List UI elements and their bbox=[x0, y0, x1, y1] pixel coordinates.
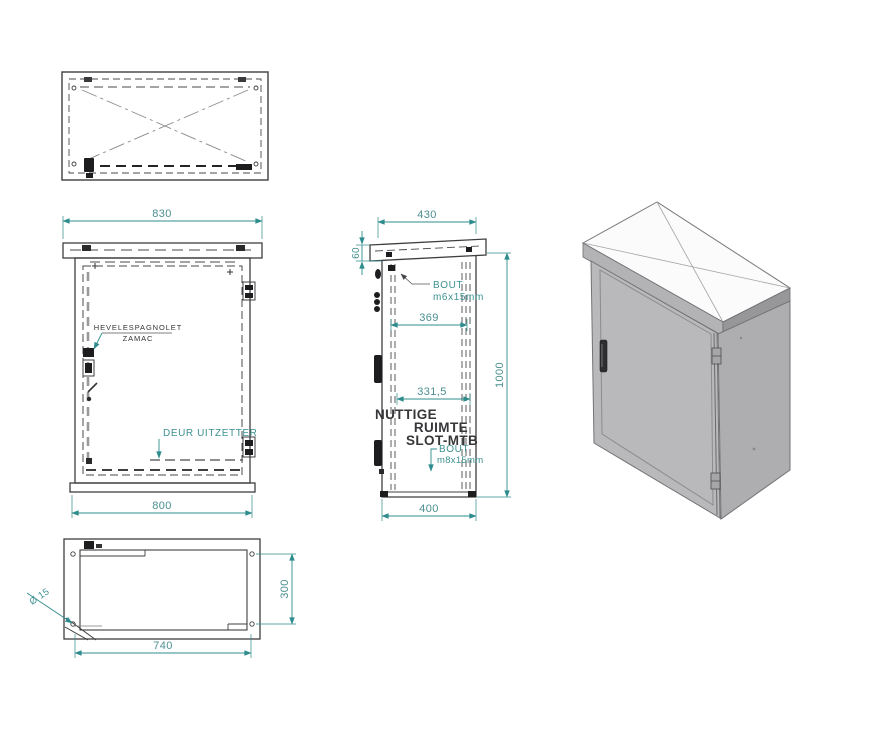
corner-hole bbox=[72, 86, 76, 90]
bolt-bottom-label-line2: m8x15mm bbox=[437, 455, 483, 466]
cabinet-drawing: 830 bbox=[0, 0, 869, 731]
dim-331-5: 331,5 bbox=[417, 386, 447, 398]
side-face bbox=[718, 301, 790, 519]
top-view bbox=[62, 72, 268, 180]
dim-300: 300 bbox=[279, 579, 291, 599]
dim-800: 800 bbox=[152, 500, 172, 512]
side-hardware bbox=[374, 265, 395, 474]
bolt-top-label-line2: m6x15mm bbox=[433, 292, 484, 303]
latch-label-line1: HEVELESPAGNOLET bbox=[94, 323, 182, 332]
dim-369: 369 bbox=[419, 312, 439, 324]
corner-hole bbox=[72, 162, 76, 166]
cross-mark bbox=[227, 269, 233, 275]
corner-hole bbox=[254, 86, 258, 90]
technical-drawing-canvas: 830 bbox=[0, 0, 869, 731]
iso-hinge-top bbox=[712, 348, 721, 364]
latch-hardware bbox=[96, 544, 102, 548]
latch-hardware bbox=[86, 173, 93, 178]
base-bracket bbox=[380, 491, 388, 497]
bolt bbox=[84, 77, 92, 82]
isometric-view bbox=[583, 202, 790, 519]
door-handle bbox=[600, 340, 607, 372]
bolt bbox=[236, 245, 245, 251]
corner-gusset bbox=[65, 627, 88, 640]
mounting-hole bbox=[250, 622, 254, 626]
roof-bolt bbox=[466, 247, 472, 252]
bottom-view: Ø 15 740 300 bbox=[27, 539, 296, 658]
dim-1000: 1000 bbox=[494, 362, 506, 388]
door-outline bbox=[83, 266, 242, 475]
dim-430: 430 bbox=[417, 209, 437, 221]
roof-bolt bbox=[386, 252, 392, 257]
side-view: 430 60 bbox=[351, 209, 511, 521]
latch-hardware bbox=[84, 158, 94, 172]
mounting-hole bbox=[71, 552, 75, 556]
door-stay-label: DEUR UITZETTER bbox=[163, 428, 258, 439]
iso-hinge-bottom bbox=[711, 473, 720, 489]
dim-740: 740 bbox=[153, 640, 173, 652]
dim-400: 400 bbox=[419, 503, 439, 515]
screw-dot bbox=[753, 448, 756, 451]
door-hinge-top bbox=[243, 282, 255, 300]
base-bracket bbox=[468, 491, 476, 497]
front-view: 830 bbox=[63, 208, 262, 518]
bolt bbox=[238, 77, 246, 82]
espagnolette-latch bbox=[83, 348, 97, 464]
door-hinge-bottom bbox=[243, 437, 255, 457]
dim-60: 60 bbox=[351, 247, 362, 259]
bolt-top-label-line1: BOUT bbox=[433, 280, 463, 291]
screw-dot bbox=[740, 337, 742, 339]
bolt-bottom-label-line1: BOUT bbox=[439, 444, 469, 455]
corner-hole bbox=[254, 162, 258, 166]
latch-label-line2: ZAMAC bbox=[123, 334, 154, 343]
dim-830: 830 bbox=[152, 208, 172, 220]
latch-hardware bbox=[84, 541, 94, 549]
cross-mark bbox=[92, 263, 98, 269]
bolt bbox=[82, 245, 91, 251]
corner-gusset bbox=[66, 618, 96, 640]
mounting-hole bbox=[250, 552, 254, 556]
hole-diameter-label: Ø 15 bbox=[27, 586, 51, 607]
hinge-hardware bbox=[236, 164, 252, 170]
